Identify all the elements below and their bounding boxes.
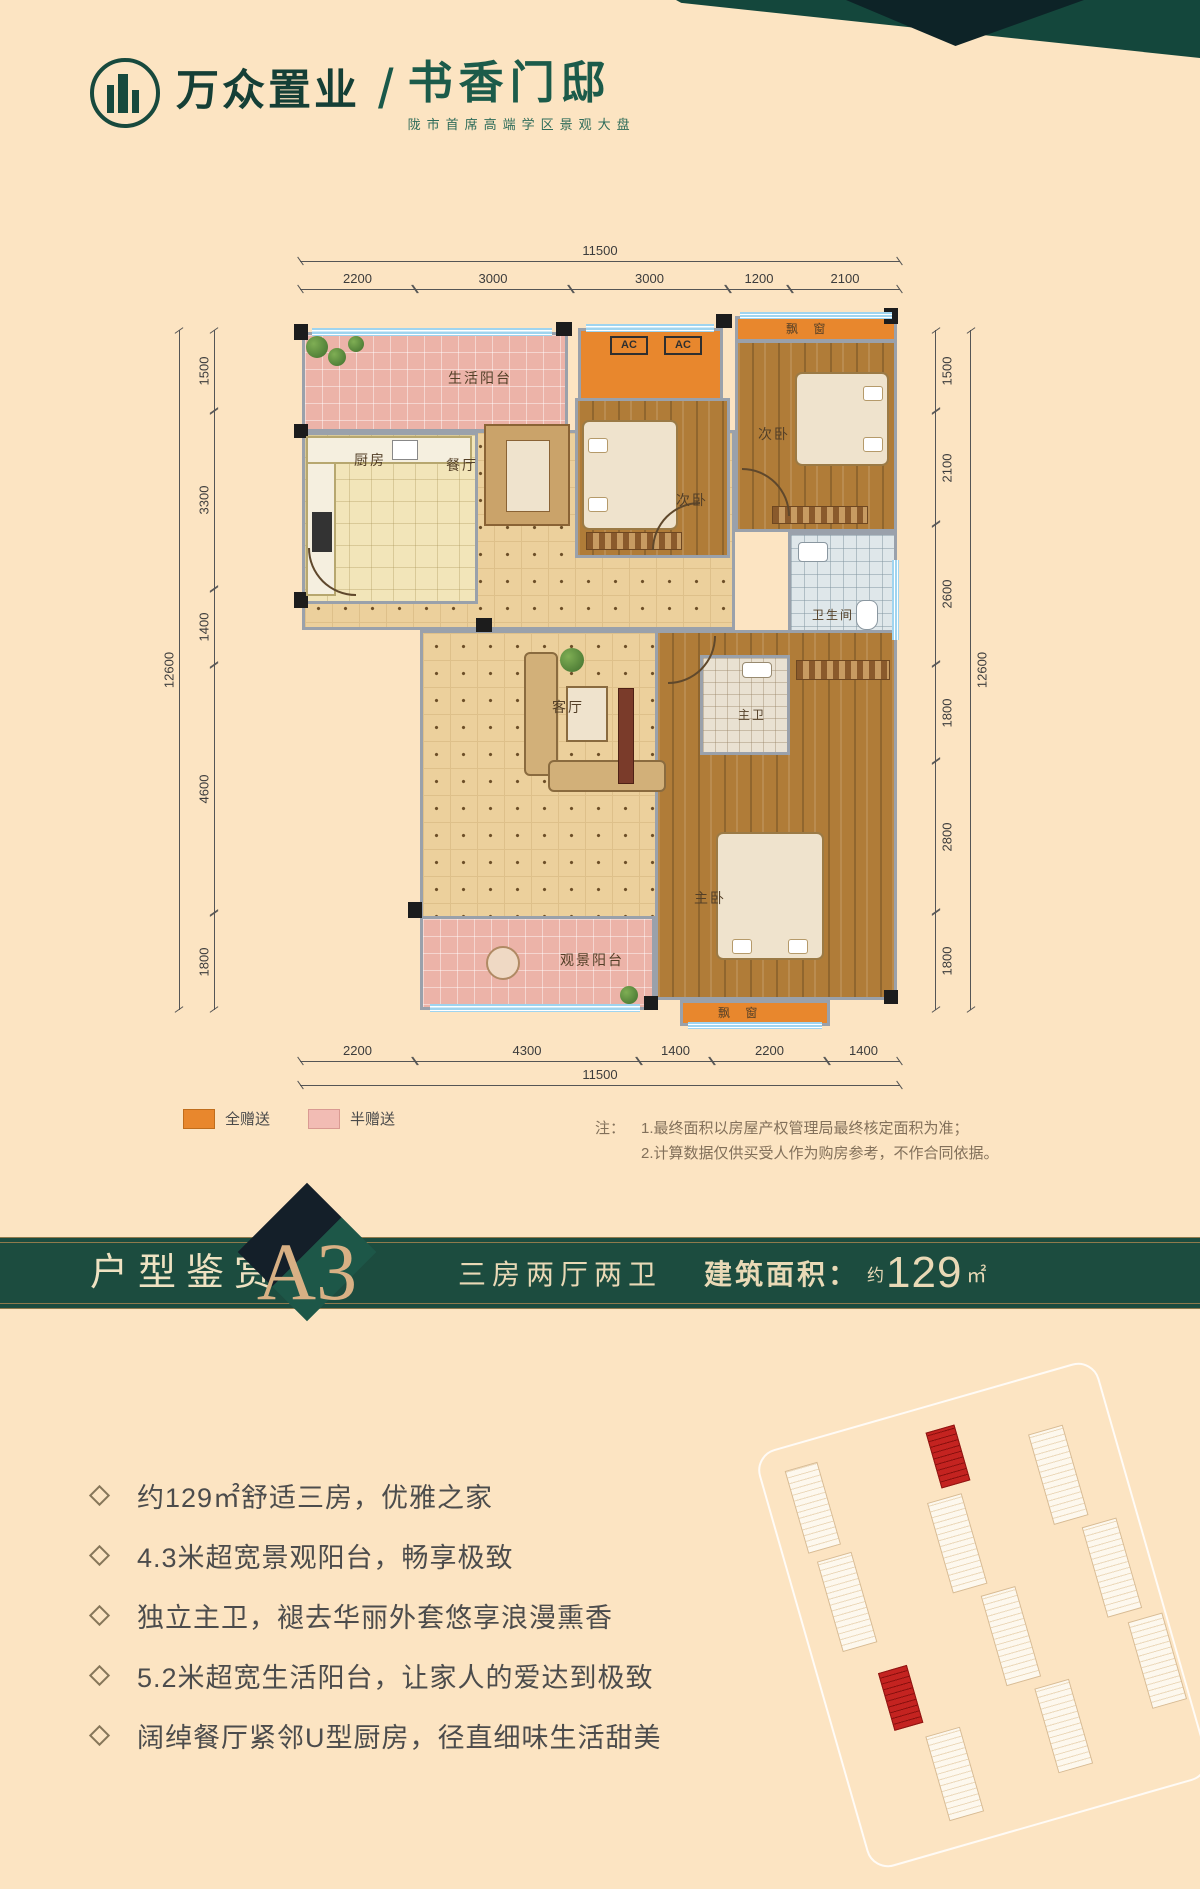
dim-value: 4600 — [196, 775, 211, 804]
building — [1028, 1425, 1089, 1525]
room-label-kitchen: 厨房 — [354, 450, 386, 470]
patio-table — [486, 946, 520, 980]
note-line-1: 1.最终面积以房屋产权管理局最终核定面积为准； — [641, 1116, 999, 1141]
wall-column — [644, 996, 658, 1010]
site-plan — [753, 1358, 1200, 1873]
building-highlighted — [878, 1665, 923, 1731]
window — [586, 324, 714, 332]
dim-value: 1500 — [939, 356, 954, 385]
dim-value: 12600 — [974, 652, 989, 688]
diamond-bullet-icon — [89, 1604, 110, 1625]
list-item: 约129㎡舒适三房，优雅之家 — [92, 1478, 662, 1512]
bed — [795, 372, 889, 466]
plant — [560, 648, 584, 672]
dim-value: 2200 — [300, 271, 415, 286]
room-label-living-room: 客厅 — [552, 697, 584, 717]
dim-value: 1400 — [196, 613, 211, 642]
dim-value: 2200 — [712, 1043, 827, 1058]
dim-value: 2600 — [939, 580, 954, 609]
dim-value: 1800 — [939, 698, 954, 727]
dim-value: 2200 — [300, 1043, 415, 1058]
dim-value: 12600 — [161, 652, 176, 688]
room-label-dining: 餐厅 — [446, 455, 478, 475]
plant — [328, 348, 346, 366]
building — [1128, 1612, 1187, 1708]
unit-code: A3 — [240, 1198, 374, 1346]
wall-column — [716, 314, 732, 328]
diamond-bullet-icon — [89, 1664, 110, 1685]
unit-banner: 户型鉴赏 A3 三房两厅两卫 建筑面积： 约 129 ㎡ — [0, 1237, 1200, 1309]
plant — [620, 986, 638, 1004]
wall-column — [556, 322, 572, 336]
dim-value: 2100 — [790, 271, 900, 286]
dim-value: 1400 — [639, 1043, 712, 1058]
dim-value: 3000 — [571, 271, 728, 286]
note-line-2: 2.计算数据仅供买受人作为购房参考，不作合同依据。 — [641, 1141, 999, 1166]
dim-value: 3300 — [196, 486, 211, 515]
list-item: 5.2米超宽生活阳台，让家人的爱达到极致 — [92, 1658, 662, 1692]
dimension-top-total: 11500 — [300, 240, 900, 262]
dim-value: 11500 — [300, 243, 900, 258]
company-name: 万众置业 — [176, 58, 360, 124]
building — [927, 1493, 988, 1593]
feature-text: 5.2米超宽生活阳台，让家人的爱达到极致 — [137, 1656, 654, 1695]
room-label-bay-window: 飘 窗 — [786, 320, 831, 337]
feature-list: 约129㎡舒适三房，优雅之家 4.3米超宽景观阳台，畅享极致 独立主卫，褪去华丽… — [92, 1478, 662, 1778]
dim-value: 1800 — [939, 947, 954, 976]
room-label-secondary-bedroom: 次卧 — [676, 490, 708, 510]
room-label-master-bathroom: 主卫 — [738, 706, 766, 723]
wall-column — [294, 324, 308, 340]
legend-label-full-gift: 全赠送 — [225, 1108, 270, 1129]
room-label-living-balcony: 生活阳台 — [448, 368, 512, 388]
bed — [582, 420, 678, 530]
feature-text: 约129㎡舒适三房，优雅之家 — [137, 1476, 493, 1515]
dim-value: 1400 — [827, 1043, 900, 1058]
diamond-bullet-icon — [89, 1724, 110, 1745]
feature-text: 4.3米超宽景观阳台，畅享极致 — [137, 1536, 514, 1575]
dim-value: 1800 — [196, 947, 211, 976]
dimension-left-total: 12600 — [158, 330, 180, 1010]
plant — [348, 336, 364, 352]
room-label-view-balcony: 观景阳台 — [560, 950, 624, 970]
plant — [306, 336, 328, 358]
window — [430, 1004, 640, 1012]
toilet — [856, 600, 878, 630]
notes: 注： 1.最终面积以房屋产权管理局最终核定面积为准； 2.计算数据仅供买受人作为… — [595, 1116, 999, 1166]
dim-value: 1500 — [196, 356, 211, 385]
wardrobe — [796, 660, 890, 680]
building — [981, 1586, 1042, 1686]
list-item: 阔绰餐厅紧邻U型厨房，径直细味生活甜美 — [92, 1718, 662, 1752]
area-approx: 约 — [867, 1261, 884, 1286]
legend-label-half-gift: 半赠送 — [350, 1108, 395, 1129]
project-tagline: 陇市首席高端学区景观大盘 — [408, 114, 636, 133]
building — [785, 1462, 841, 1554]
feature-text: 阔绰餐厅紧邻U型厨房，径直细味生活甜美 — [137, 1716, 662, 1755]
dimension-right-total: 12600 — [970, 330, 992, 1010]
dim-value: 2100 — [939, 453, 954, 482]
window — [688, 1022, 822, 1029]
sink — [392, 440, 418, 460]
logo: 万众置业 / 书香门邸 陇市首席高端学区景观大盘 — [90, 58, 636, 133]
area-unit: ㎡ — [966, 1259, 986, 1288]
poster: 万众置业 / 书香门邸 陇市首席高端学区景观大盘 — [0, 0, 1200, 1889]
living-balcony — [302, 332, 568, 432]
room-label-secondary-bedroom: 次卧 — [758, 424, 790, 444]
ac-label: AC — [610, 336, 648, 355]
building-logo-icon — [90, 58, 160, 128]
wall-column — [884, 990, 898, 1004]
building-highlighted — [926, 1425, 971, 1489]
building — [817, 1552, 878, 1652]
legend-swatch-half-gift — [308, 1109, 340, 1129]
window — [740, 312, 892, 319]
logo-divider: / — [378, 58, 394, 120]
sofa — [548, 760, 666, 792]
room-label-bay-window: 飘 窗 — [718, 1004, 763, 1021]
feature-text: 独立主卫，褪去华丽外套悠享浪漫熏香 — [137, 1596, 613, 1635]
dim-value: 11500 — [300, 1067, 900, 1082]
notes-prefix: 注： — [595, 1116, 625, 1166]
building — [1034, 1679, 1093, 1774]
unit-layout: 三房两厅两卫 — [458, 1253, 662, 1293]
dim-value: 2800 — [939, 822, 954, 851]
bath-sink — [798, 542, 828, 562]
building — [925, 1727, 984, 1822]
wall-column — [476, 618, 492, 632]
bed — [716, 832, 824, 960]
tv-cabinet — [618, 688, 634, 784]
stove — [312, 512, 332, 552]
dimension-bottom-total: 11500 — [300, 1064, 900, 1086]
window — [892, 560, 899, 640]
diamond-bullet-icon — [89, 1484, 110, 1505]
list-item: 4.3米超宽景观阳台，畅享极致 — [92, 1538, 662, 1572]
list-item: 独立主卫，褪去华丽外套悠享浪漫熏香 — [92, 1598, 662, 1632]
room-label-master-bedroom: 主卧 — [694, 888, 726, 908]
dimension-right-segments: 1500 2100 2600 1800 2800 1800 — [935, 330, 957, 1010]
ac-label: AC — [664, 336, 702, 355]
building — [1082, 1517, 1143, 1617]
dim-value: 4300 — [415, 1043, 639, 1058]
dimension-bottom-segments: 2200 4300 1400 2200 1400 — [300, 1040, 900, 1062]
bath-sink — [742, 662, 772, 678]
dim-value: 3000 — [415, 271, 571, 286]
dining-table — [484, 424, 570, 526]
wall-column — [408, 902, 422, 918]
window — [312, 328, 552, 336]
dimension-top-segments: 2200 3000 3000 1200 2100 — [300, 268, 900, 290]
room-label-bathroom: 卫生间 — [812, 606, 854, 623]
area-label: 建筑面积： — [704, 1253, 859, 1293]
project-name: 书香门邸 — [408, 58, 636, 108]
diamond-bullet-icon — [89, 1544, 110, 1565]
area-value: 129 — [886, 1248, 962, 1298]
dimension-left-segments: 1500 3300 1400 4600 1800 — [193, 330, 215, 1010]
dim-value: 1200 — [728, 271, 790, 286]
legend: 全赠送 半赠送 — [183, 1108, 433, 1129]
legend-swatch-full-gift — [183, 1109, 215, 1129]
